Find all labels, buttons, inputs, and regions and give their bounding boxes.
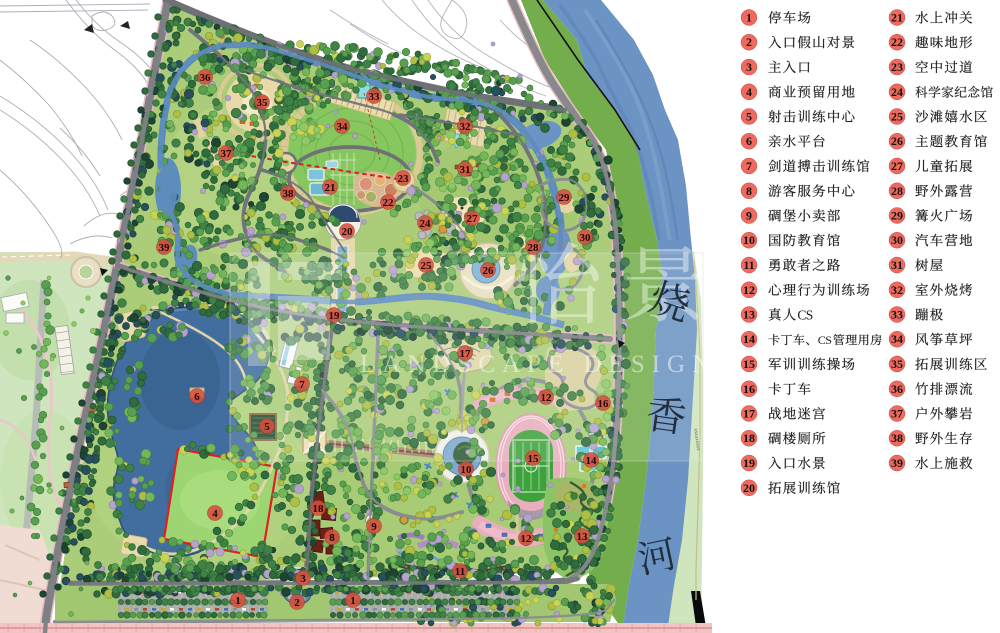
svg-text:17: 17 xyxy=(743,407,755,421)
svg-text:29: 29 xyxy=(559,192,571,204)
svg-text:13: 13 xyxy=(743,308,755,322)
svg-text:4: 4 xyxy=(746,85,752,99)
svg-text:32: 32 xyxy=(460,121,472,133)
svg-text:7: 7 xyxy=(299,379,305,391)
svg-text:38: 38 xyxy=(283,188,295,200)
svg-text:7: 7 xyxy=(746,159,752,173)
svg-text:23: 23 xyxy=(398,173,410,185)
svg-text:2: 2 xyxy=(746,35,752,49)
svg-text:6: 6 xyxy=(194,391,200,403)
svg-text:8: 8 xyxy=(329,532,335,544)
svg-text:9: 9 xyxy=(371,521,377,533)
svg-text:3: 3 xyxy=(300,573,306,585)
svg-text:11: 11 xyxy=(743,258,754,272)
svg-text:32: 32 xyxy=(891,283,903,297)
svg-text:25: 25 xyxy=(421,260,433,272)
svg-text:13: 13 xyxy=(577,531,589,543)
svg-text:5: 5 xyxy=(264,421,270,433)
svg-text:6: 6 xyxy=(746,134,752,148)
svg-text:16: 16 xyxy=(598,398,610,410)
svg-text:20: 20 xyxy=(342,226,354,238)
svg-text:14: 14 xyxy=(743,332,755,346)
svg-text:18: 18 xyxy=(313,503,325,515)
svg-text:4: 4 xyxy=(212,508,218,520)
svg-text:34: 34 xyxy=(891,332,903,346)
svg-text:24: 24 xyxy=(420,218,432,230)
svg-text:33: 33 xyxy=(369,91,381,103)
svg-text:12: 12 xyxy=(743,283,755,297)
svg-text:21: 21 xyxy=(325,182,336,194)
svg-text:20: 20 xyxy=(743,481,755,495)
svg-text:35: 35 xyxy=(891,357,903,371)
svg-text:27: 27 xyxy=(891,159,903,173)
svg-text:39: 39 xyxy=(891,456,903,470)
svg-text:1: 1 xyxy=(350,595,356,607)
svg-text:22: 22 xyxy=(383,197,395,209)
svg-text:9: 9 xyxy=(746,209,752,223)
svg-text:10: 10 xyxy=(743,233,755,247)
svg-text:21: 21 xyxy=(891,11,903,25)
svg-text:33: 33 xyxy=(891,308,903,322)
svg-text:31: 31 xyxy=(460,164,471,176)
svg-text:30: 30 xyxy=(891,233,903,247)
svg-text:23: 23 xyxy=(891,60,903,74)
svg-text:30: 30 xyxy=(580,232,592,244)
svg-text:15: 15 xyxy=(528,453,540,465)
svg-text:38: 38 xyxy=(891,431,903,445)
svg-text:22: 22 xyxy=(891,35,903,49)
svg-text:5: 5 xyxy=(746,110,752,124)
svg-text:19: 19 xyxy=(743,456,755,470)
svg-text:34: 34 xyxy=(337,121,349,133)
svg-text:12: 12 xyxy=(541,392,553,404)
svg-text:37: 37 xyxy=(891,407,903,421)
svg-text:18: 18 xyxy=(743,431,755,445)
svg-text:28: 28 xyxy=(891,184,903,198)
svg-text:27: 27 xyxy=(467,213,479,225)
svg-text:26: 26 xyxy=(891,134,903,148)
svg-text:35: 35 xyxy=(257,97,269,109)
svg-text:1: 1 xyxy=(746,11,752,25)
svg-text:19: 19 xyxy=(329,310,341,322)
svg-text:36: 36 xyxy=(200,72,212,84)
svg-text:S: S xyxy=(806,308,814,323)
svg-text:28: 28 xyxy=(528,242,540,254)
svg-text:16: 16 xyxy=(743,382,755,396)
svg-text:12: 12 xyxy=(521,533,533,545)
svg-text:25: 25 xyxy=(891,110,903,124)
svg-text:8: 8 xyxy=(746,184,752,198)
svg-text:37: 37 xyxy=(221,148,233,160)
svg-text:LANDSCAPE DESIGN: LANDSCAPE DESIGN xyxy=(360,351,717,378)
svg-text:15: 15 xyxy=(743,357,755,371)
svg-text:3: 3 xyxy=(746,60,752,74)
svg-text:31: 31 xyxy=(891,258,903,272)
svg-text:36: 36 xyxy=(891,382,903,396)
svg-text:39: 39 xyxy=(159,242,171,254)
svg-text:2: 2 xyxy=(294,597,300,609)
svg-text:24: 24 xyxy=(891,85,903,99)
svg-text:11: 11 xyxy=(455,566,465,578)
svg-text:29: 29 xyxy=(891,209,903,223)
svg-text:1: 1 xyxy=(235,595,241,607)
svg-text:17: 17 xyxy=(460,348,472,360)
svg-text:26: 26 xyxy=(483,265,495,277)
svg-text:14: 14 xyxy=(586,455,598,467)
svg-text:10: 10 xyxy=(461,464,473,476)
svg-text:S: S xyxy=(825,333,832,347)
